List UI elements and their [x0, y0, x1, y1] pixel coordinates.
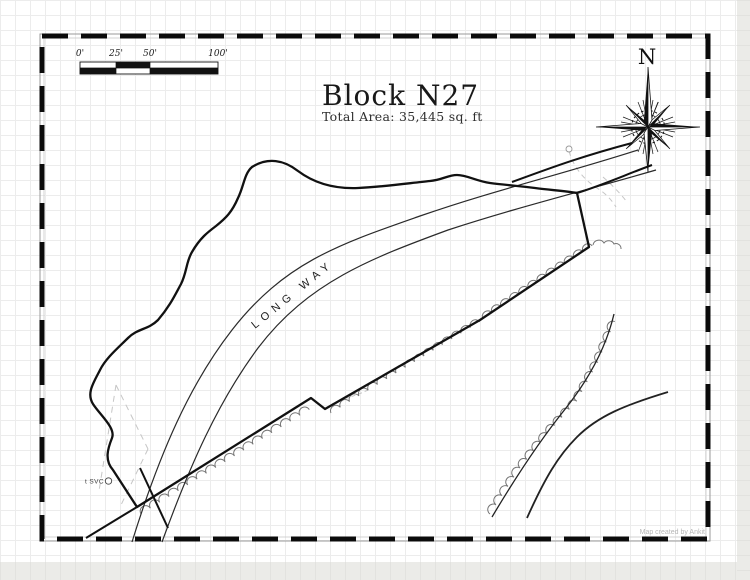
dashed-survey-lines [99, 151, 627, 505]
compass-cardinal-needles [596, 67, 700, 172]
tree-line-southeast [488, 321, 615, 514]
boundary-extensions [86, 143, 652, 538]
north-label: N [638, 45, 656, 69]
service-marker-circle [105, 478, 111, 484]
stream-curve-outer [527, 392, 668, 518]
map-subtitle: Total Area: 35,445 sq. ft [322, 109, 483, 124]
road-line-upper [132, 150, 638, 542]
road-label: LONG WAY [249, 258, 336, 332]
road-long-way [132, 150, 656, 542]
map-canvas: 0' 25' 50' 100' Block N27 Total Area: 35… [0, 0, 750, 580]
scale-tick-50: 50' [143, 49, 157, 59]
scale-tick-100: 100' [208, 49, 228, 59]
boundary-extension-sw [86, 507, 137, 538]
map-title: Block N27 [322, 79, 479, 112]
credit-text: Map created by Ankit [640, 529, 705, 536]
scale-bar: 0' 25' 50' 100' [76, 49, 228, 74]
compass-rose: N [596, 45, 700, 172]
service-marker: t SVC [85, 146, 572, 486]
boundary-extension-ne-lower [577, 165, 652, 193]
scale-tick-0: 0' [76, 49, 84, 59]
stream-curve-inner [492, 314, 614, 517]
scale-tick-25: 25' [108, 49, 123, 59]
survey-point-circle [566, 146, 572, 152]
dashed-stub-topright [603, 177, 627, 202]
service-label: t SVC [85, 479, 104, 486]
road-line-lower [162, 170, 656, 542]
parcel-outline [90, 161, 589, 507]
